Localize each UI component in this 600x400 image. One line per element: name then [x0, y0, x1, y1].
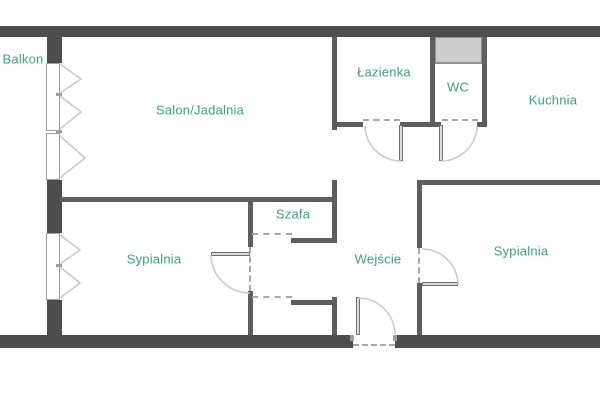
- room-label-lazienka: Łazienka: [357, 65, 411, 80]
- room-label-szafa: Szafa: [276, 207, 310, 222]
- room-label-sypialnia-1: Sypialnia: [127, 252, 182, 267]
- room-labels: BalkonSalon/JadalniaŁazienkaWCKuchniaSza…: [0, 0, 600, 400]
- room-label-balkon: Balkon: [3, 52, 44, 67]
- room-label-wc: WC: [447, 80, 469, 95]
- room-label-wejscie: Wejście: [355, 252, 402, 267]
- room-label-sypialnia-2: Sypialnia: [494, 244, 549, 259]
- room-label-kuchnia: Kuchnia: [529, 93, 577, 108]
- room-label-salon: Salon/Jadalnia: [156, 103, 244, 118]
- floor-plan: BalkonSalon/JadalniaŁazienkaWCKuchniaSza…: [0, 0, 600, 400]
